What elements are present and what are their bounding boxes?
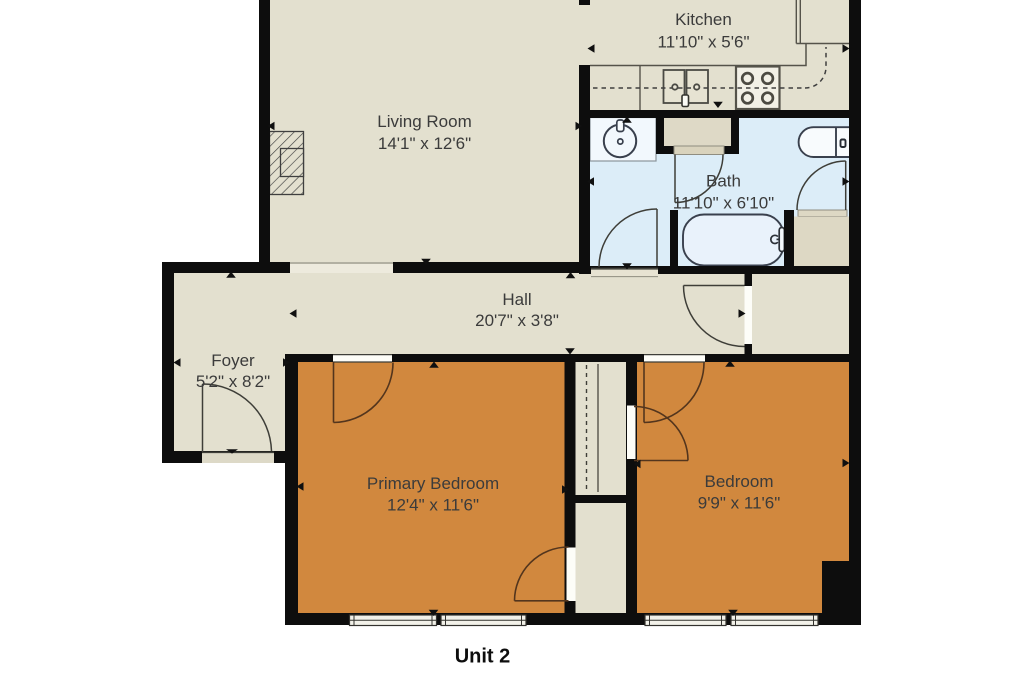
svg-text:Hall: Hall [502, 290, 531, 309]
svg-text:9'9" x 11'6": 9'9" x 11'6" [698, 494, 781, 513]
svg-text:12'4" x 11'6": 12'4" x 11'6" [387, 496, 479, 515]
svg-text:Bedroom: Bedroom [705, 472, 774, 491]
svg-text:Foyer: Foyer [211, 351, 255, 370]
svg-text:14'1" x 12'6": 14'1" x 12'6" [378, 134, 471, 153]
svg-text:11'10" x 6'10": 11'10" x 6'10" [673, 194, 774, 213]
svg-text:Living Room: Living Room [377, 112, 472, 131]
svg-text:Unit 2: Unit 2 [455, 646, 511, 668]
svg-text:Primary Bedroom: Primary Bedroom [367, 474, 499, 493]
svg-text:Kitchen: Kitchen [675, 10, 732, 29]
svg-text:11'10" x 5'6": 11'10" x 5'6" [658, 33, 750, 52]
svg-text:5'2" x 8'2": 5'2" x 8'2" [196, 372, 270, 391]
svg-text:Bath: Bath [706, 172, 741, 191]
svg-text:20'7" x 3'8": 20'7" x 3'8" [475, 311, 559, 330]
